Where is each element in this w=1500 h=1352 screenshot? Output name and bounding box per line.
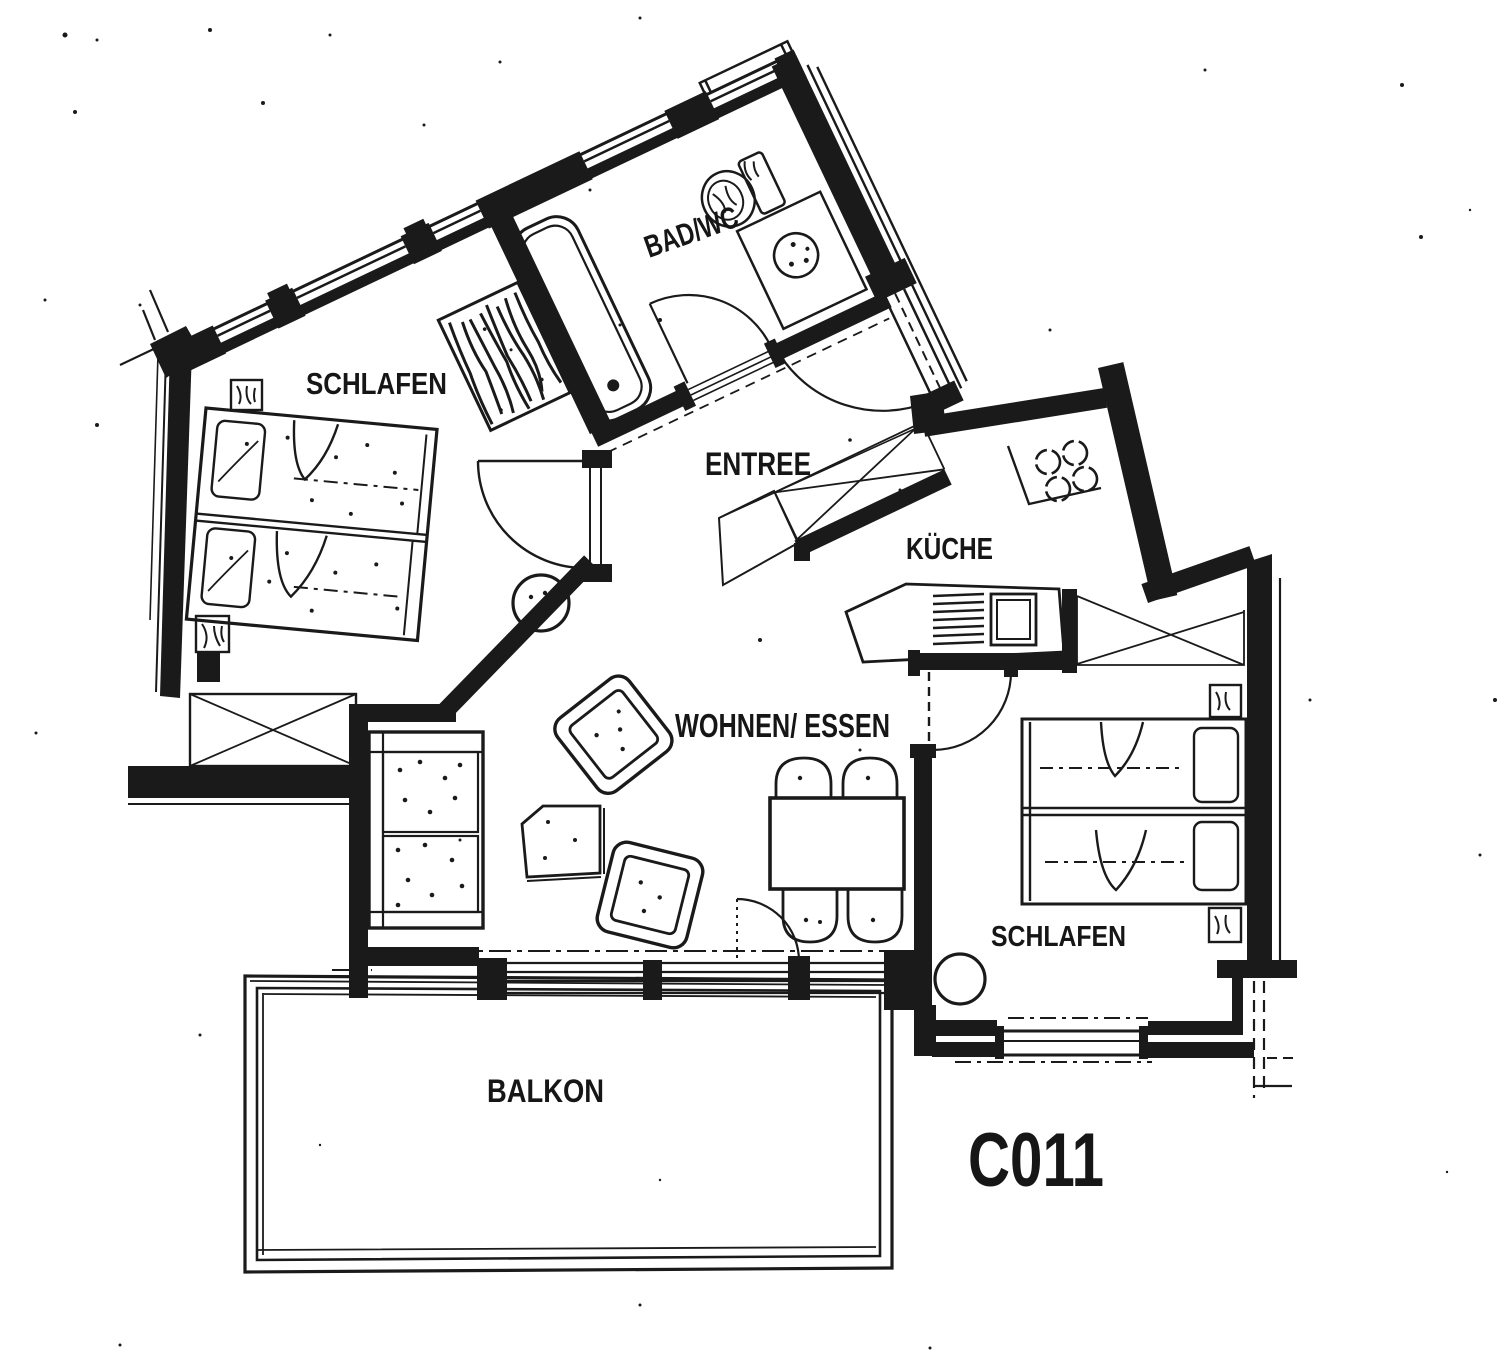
svg-text:SCHLAFEN: SCHLAFEN bbox=[306, 366, 447, 401]
svg-text:WOHNEN/ ESSEN: WOHNEN/ ESSEN bbox=[675, 707, 890, 744]
svg-text:KÜCHE: KÜCHE bbox=[906, 531, 993, 566]
svg-text:ENTREE: ENTREE bbox=[705, 446, 811, 482]
svg-text:C011: C011 bbox=[968, 1118, 1104, 1203]
svg-text:BALKON: BALKON bbox=[487, 1073, 604, 1109]
svg-text:SCHLAFEN: SCHLAFEN bbox=[991, 921, 1126, 953]
